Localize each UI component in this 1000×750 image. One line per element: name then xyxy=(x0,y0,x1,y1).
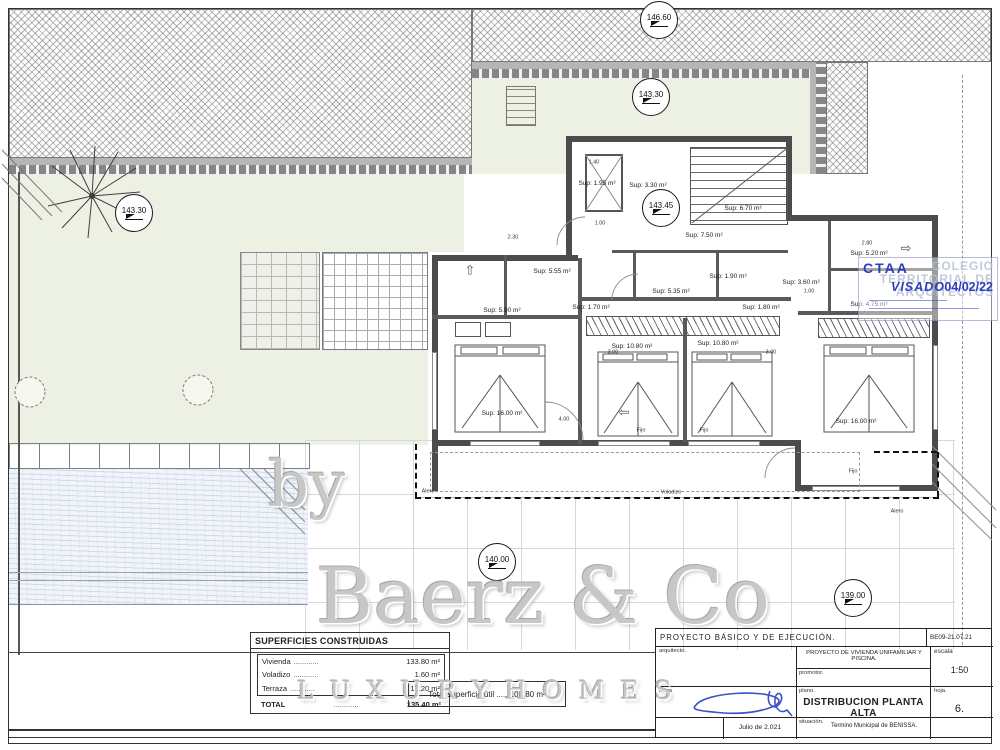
area-label: Terraza xyxy=(262,684,287,693)
stamp-status: VISADO xyxy=(891,280,945,294)
situacion-label: situación. xyxy=(797,718,826,726)
escala-label: escala xyxy=(932,647,955,656)
hoja-label: hoja. xyxy=(932,687,949,695)
wall xyxy=(828,221,831,313)
arquitecto-label: arquitecto. xyxy=(657,647,688,655)
paved-patio xyxy=(322,252,428,350)
blueprint-canvas: Sup: 1.95 m²Sup: 3.30 m²Sup: 6.70 m²Sup:… xyxy=(0,0,1000,750)
wall xyxy=(683,318,687,442)
stone-wall-block xyxy=(240,252,320,350)
dots-leader: ............ xyxy=(293,670,411,679)
area-label: Voladizo xyxy=(262,670,290,679)
wall xyxy=(612,250,788,253)
window xyxy=(688,441,760,446)
balcony-dashed-line xyxy=(430,452,860,492)
total-label: TOTAL xyxy=(261,700,285,709)
pool-edge-line xyxy=(9,580,308,581)
dots-leader: ............ xyxy=(334,700,359,709)
area-row: Voladizo............1.60 m² xyxy=(258,670,444,679)
sheet-divider-line xyxy=(8,737,655,738)
eave-dashed-line xyxy=(415,444,417,498)
stone-wall-strip xyxy=(9,165,472,174)
useful-area-box: Total superficie útil ..... 108.80 m² xyxy=(408,681,566,707)
window xyxy=(470,441,540,446)
wall xyxy=(566,136,572,261)
wall xyxy=(633,253,636,299)
stone-wall-strip xyxy=(472,69,820,78)
escala-value: 1:50 xyxy=(932,665,987,675)
retaining-wall-band xyxy=(472,62,820,69)
area-row: Vivienda............133.80 m² xyxy=(258,657,444,666)
wall xyxy=(504,255,507,317)
architect-signature xyxy=(686,687,798,718)
retaining-wall-band xyxy=(9,158,472,165)
garden-area xyxy=(9,252,240,445)
wall xyxy=(578,297,791,301)
area-value: 1.60 m² xyxy=(415,670,440,679)
date-value: Julio de 2.021 xyxy=(726,724,794,731)
stamp-date: 04/02/22 xyxy=(944,280,993,294)
wall xyxy=(566,136,792,142)
area-label: Vivienda xyxy=(262,657,291,666)
pool-edge-line xyxy=(9,572,308,573)
project-code: BE09-21.07.21 xyxy=(930,634,972,641)
title-block-line xyxy=(930,646,931,739)
eave-dashed-line xyxy=(415,497,939,499)
window xyxy=(933,345,938,430)
promotor-label: promotor. xyxy=(797,669,826,677)
vanity-unit xyxy=(485,322,511,337)
wardrobe-strip xyxy=(586,316,780,336)
sheet-divider-line xyxy=(8,729,655,731)
title-block-line xyxy=(926,629,927,646)
terrain-hatch-top-band xyxy=(472,9,991,62)
eave-dashed-line xyxy=(874,451,937,453)
staircase xyxy=(690,147,788,225)
garden-steps xyxy=(506,86,536,126)
dots-leader: ............ xyxy=(294,657,404,666)
firma-label: firma xyxy=(657,687,674,695)
wall xyxy=(716,253,719,299)
situacion-value: Termino Municipal de BENISSA. xyxy=(831,723,917,729)
stamp-org: CTAA xyxy=(863,260,909,276)
areas-table-title: SUPERFICIES CONSTRUIDAS xyxy=(251,633,449,649)
wall xyxy=(786,215,938,221)
terrain-hatch-right-band xyxy=(826,62,868,174)
sheet-number: 6. xyxy=(932,703,987,715)
title-block: PROYECTO BÁSICO Y DE EJECUCIÓN. BE09-21.… xyxy=(655,628,992,738)
terrace-tile-row xyxy=(9,443,310,469)
boundary-dashed-line xyxy=(962,75,963,645)
stone-wall-strip xyxy=(816,62,826,174)
plot-boundary-line xyxy=(18,172,20,655)
vanity-unit xyxy=(455,322,481,337)
garden-area xyxy=(240,350,428,445)
work-title: PROYECTO DE VIVIENDA UNIFAMILIAR Y PISCI… xyxy=(798,650,930,662)
pool-water xyxy=(9,469,308,605)
elevator-shaft xyxy=(585,154,623,212)
terrain-hatch-top-left xyxy=(9,9,472,158)
window xyxy=(598,441,670,446)
project-row: PROYECTO BÁSICO Y DE EJECUCIÓN. xyxy=(660,633,836,642)
eave-dashed-line xyxy=(937,452,939,497)
wardrobe-strip xyxy=(818,318,930,338)
dots-leader: ............ xyxy=(290,684,407,693)
window xyxy=(432,352,437,430)
plan-title: DISTRIBUCION PLANTA ALTA xyxy=(797,697,930,719)
area-value: 133.80 m² xyxy=(406,657,440,666)
stamp-fine-print-line xyxy=(869,300,947,301)
plano-label: plano. xyxy=(797,687,817,695)
garden-area xyxy=(9,174,464,252)
title-block-line xyxy=(723,717,724,739)
stamp-fine-print-line xyxy=(869,308,979,309)
wall xyxy=(578,258,582,444)
visado-stamp: COLEGIO TERRITORIAL DE ARQUITECTOS CTAA … xyxy=(858,257,998,321)
